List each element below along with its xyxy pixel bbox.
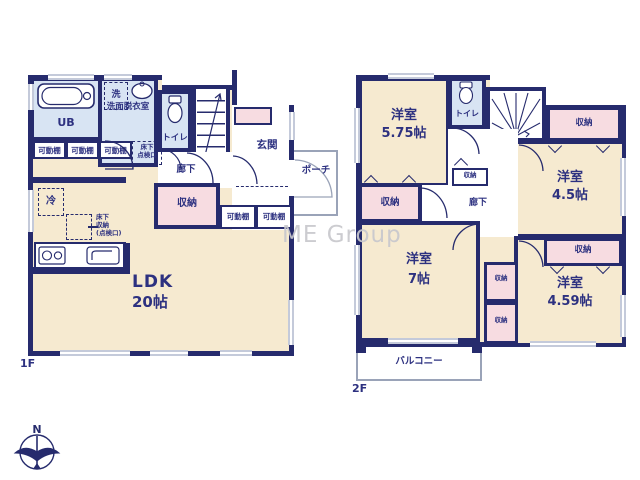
label-underfloor-hatch: 床下 点検口 — [132, 144, 162, 160]
door-arc — [160, 148, 182, 170]
label-entrance: 玄関 — [246, 139, 288, 152]
door-arc — [518, 240, 544, 268]
window — [620, 295, 626, 337]
window — [388, 338, 458, 344]
label-closet-2f-right1: 収納 — [484, 275, 518, 283]
label-room7-size: 7帖 — [358, 272, 480, 288]
window — [48, 74, 94, 80]
label-laundry: 洗 — [104, 90, 128, 101]
floor1-notch-entrance — [232, 70, 294, 110]
kitchen-wall — [123, 243, 130, 274]
label-closet-2f-small: 収納 — [452, 172, 488, 180]
floor-plan: UB 洗 洗面脱衣室 トイレ UP 廊下 玄関 ポーチ 収納 可動棚 可動棚 可… — [0, 0, 640, 480]
label-bath: UB — [30, 116, 102, 129]
label-balcony: バルコニー — [356, 356, 482, 367]
window — [288, 300, 294, 345]
label-room459-size: 4.59帖 — [514, 294, 626, 310]
label-fridge: 冷 — [38, 196, 64, 208]
label-closet-2f-right2: 収納 — [484, 317, 518, 325]
toilet-icon-1f — [165, 95, 185, 125]
window — [289, 112, 295, 140]
label-room575-size: 5.75帖 — [358, 126, 450, 142]
kitchen-wall — [30, 267, 130, 274]
window — [28, 84, 34, 110]
window — [354, 245, 360, 315]
label-closet-2f-mid: 収納 — [544, 245, 622, 255]
watermark: ME Group — [282, 222, 402, 248]
label-shelf: 可動棚 — [33, 146, 66, 155]
label-room45-name: 洋室 — [514, 170, 626, 186]
compass-north-label: N — [32, 423, 41, 436]
label-room575-name: 洋室 — [358, 108, 450, 124]
window — [620, 158, 626, 216]
window — [530, 341, 596, 347]
label-floor2: 2F — [352, 382, 382, 395]
wall — [28, 177, 126, 183]
door-arc — [104, 140, 134, 170]
toilet-icon-2f — [457, 81, 475, 105]
window — [150, 350, 188, 356]
door-arc — [186, 152, 214, 184]
label-shelf: 可動棚 — [66, 146, 99, 155]
bathtub-icon — [37, 83, 95, 109]
kitchen-sink-icon — [86, 246, 120, 265]
label-shelf: 可動棚 — [256, 212, 292, 221]
label-ldk-size: 20帖 — [132, 293, 202, 311]
door-arc — [518, 144, 544, 172]
window — [104, 74, 132, 80]
label-underfloor-storage: 床下 収納 (点検口) — [96, 214, 128, 237]
sink-icon — [130, 80, 154, 100]
entrance-step-line — [236, 186, 288, 187]
window — [60, 350, 130, 356]
label-hallway-2f: 廊下 — [458, 198, 498, 209]
label-floor1: 1F — [20, 357, 50, 370]
balcony-post — [356, 345, 366, 353]
window — [354, 108, 360, 163]
door-arc — [420, 187, 448, 219]
label-closet-2f-left: 収納 — [358, 197, 422, 208]
door-arc — [452, 223, 480, 251]
door-arc — [232, 155, 258, 185]
window — [388, 73, 434, 79]
label-room459-name: 洋室 — [514, 276, 626, 292]
compass-icon: N — [10, 423, 64, 477]
window — [28, 190, 34, 232]
door-arc — [452, 127, 480, 155]
label-toilet-2f: トイレ — [448, 109, 486, 119]
label-shelf: 可動棚 — [220, 212, 256, 221]
balcony-post — [472, 345, 482, 353]
label-storage-1f: 収納 — [154, 198, 220, 210]
label-toilet-1f: トイレ — [158, 133, 192, 143]
label-room45-size: 4.5帖 — [514, 188, 626, 204]
label-porch: ポーチ — [294, 165, 338, 176]
window — [220, 350, 252, 356]
floor2-notch-closet — [546, 70, 626, 110]
label-room7-name: 洋室 — [358, 252, 480, 268]
shoe-cabinet — [234, 107, 272, 125]
stove-icon — [38, 246, 66, 265]
label-closet-2f-top: 収納 — [546, 118, 622, 128]
label-washroom: 洗面脱衣室 — [97, 102, 159, 112]
label-ldk-name: LDK — [132, 272, 202, 292]
door-arc — [293, 158, 333, 198]
